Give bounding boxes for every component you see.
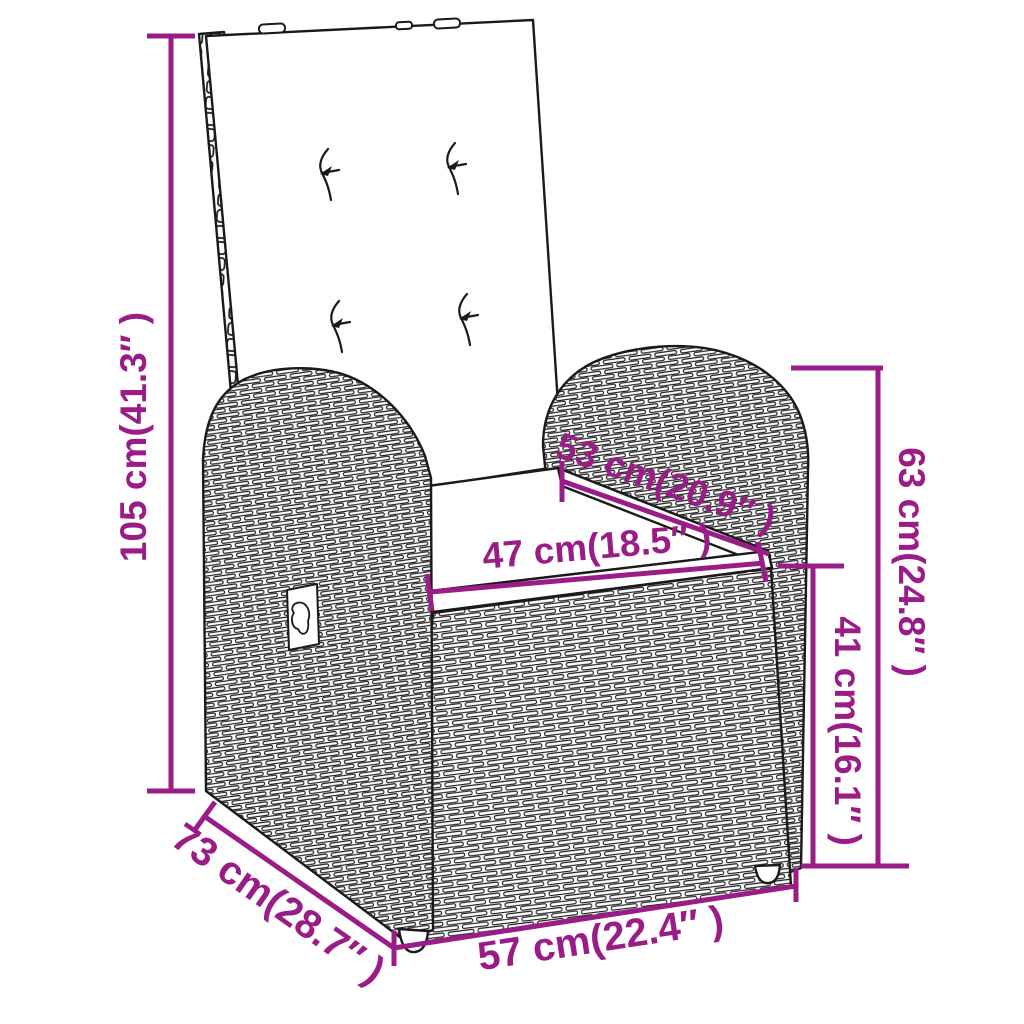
dimension-diagram-canvas: 105 cm(41.3″ ) 63 cm(24.8″ ) 41 cm(16.1″… — [0, 0, 1024, 1024]
product-dimension-diagram: 105 cm(41.3″ ) 63 cm(24.8″ ) 41 cm(16.1″… — [0, 0, 1024, 1024]
dim-seat-height-label: 41 cm(16.1″ ) — [827, 616, 868, 846]
recline-handle — [287, 584, 319, 650]
dim-total-height-line — [147, 36, 195, 791]
cushion-tie — [259, 23, 285, 33]
dim-total-height-label: 105 cm(41.3″ ) — [113, 312, 154, 562]
seat-base — [404, 568, 791, 945]
dim-armrest-height-label: 63 cm(24.8″ ) — [891, 447, 932, 677]
cushion-tie — [434, 18, 460, 28]
cushion-tie — [396, 22, 412, 30]
